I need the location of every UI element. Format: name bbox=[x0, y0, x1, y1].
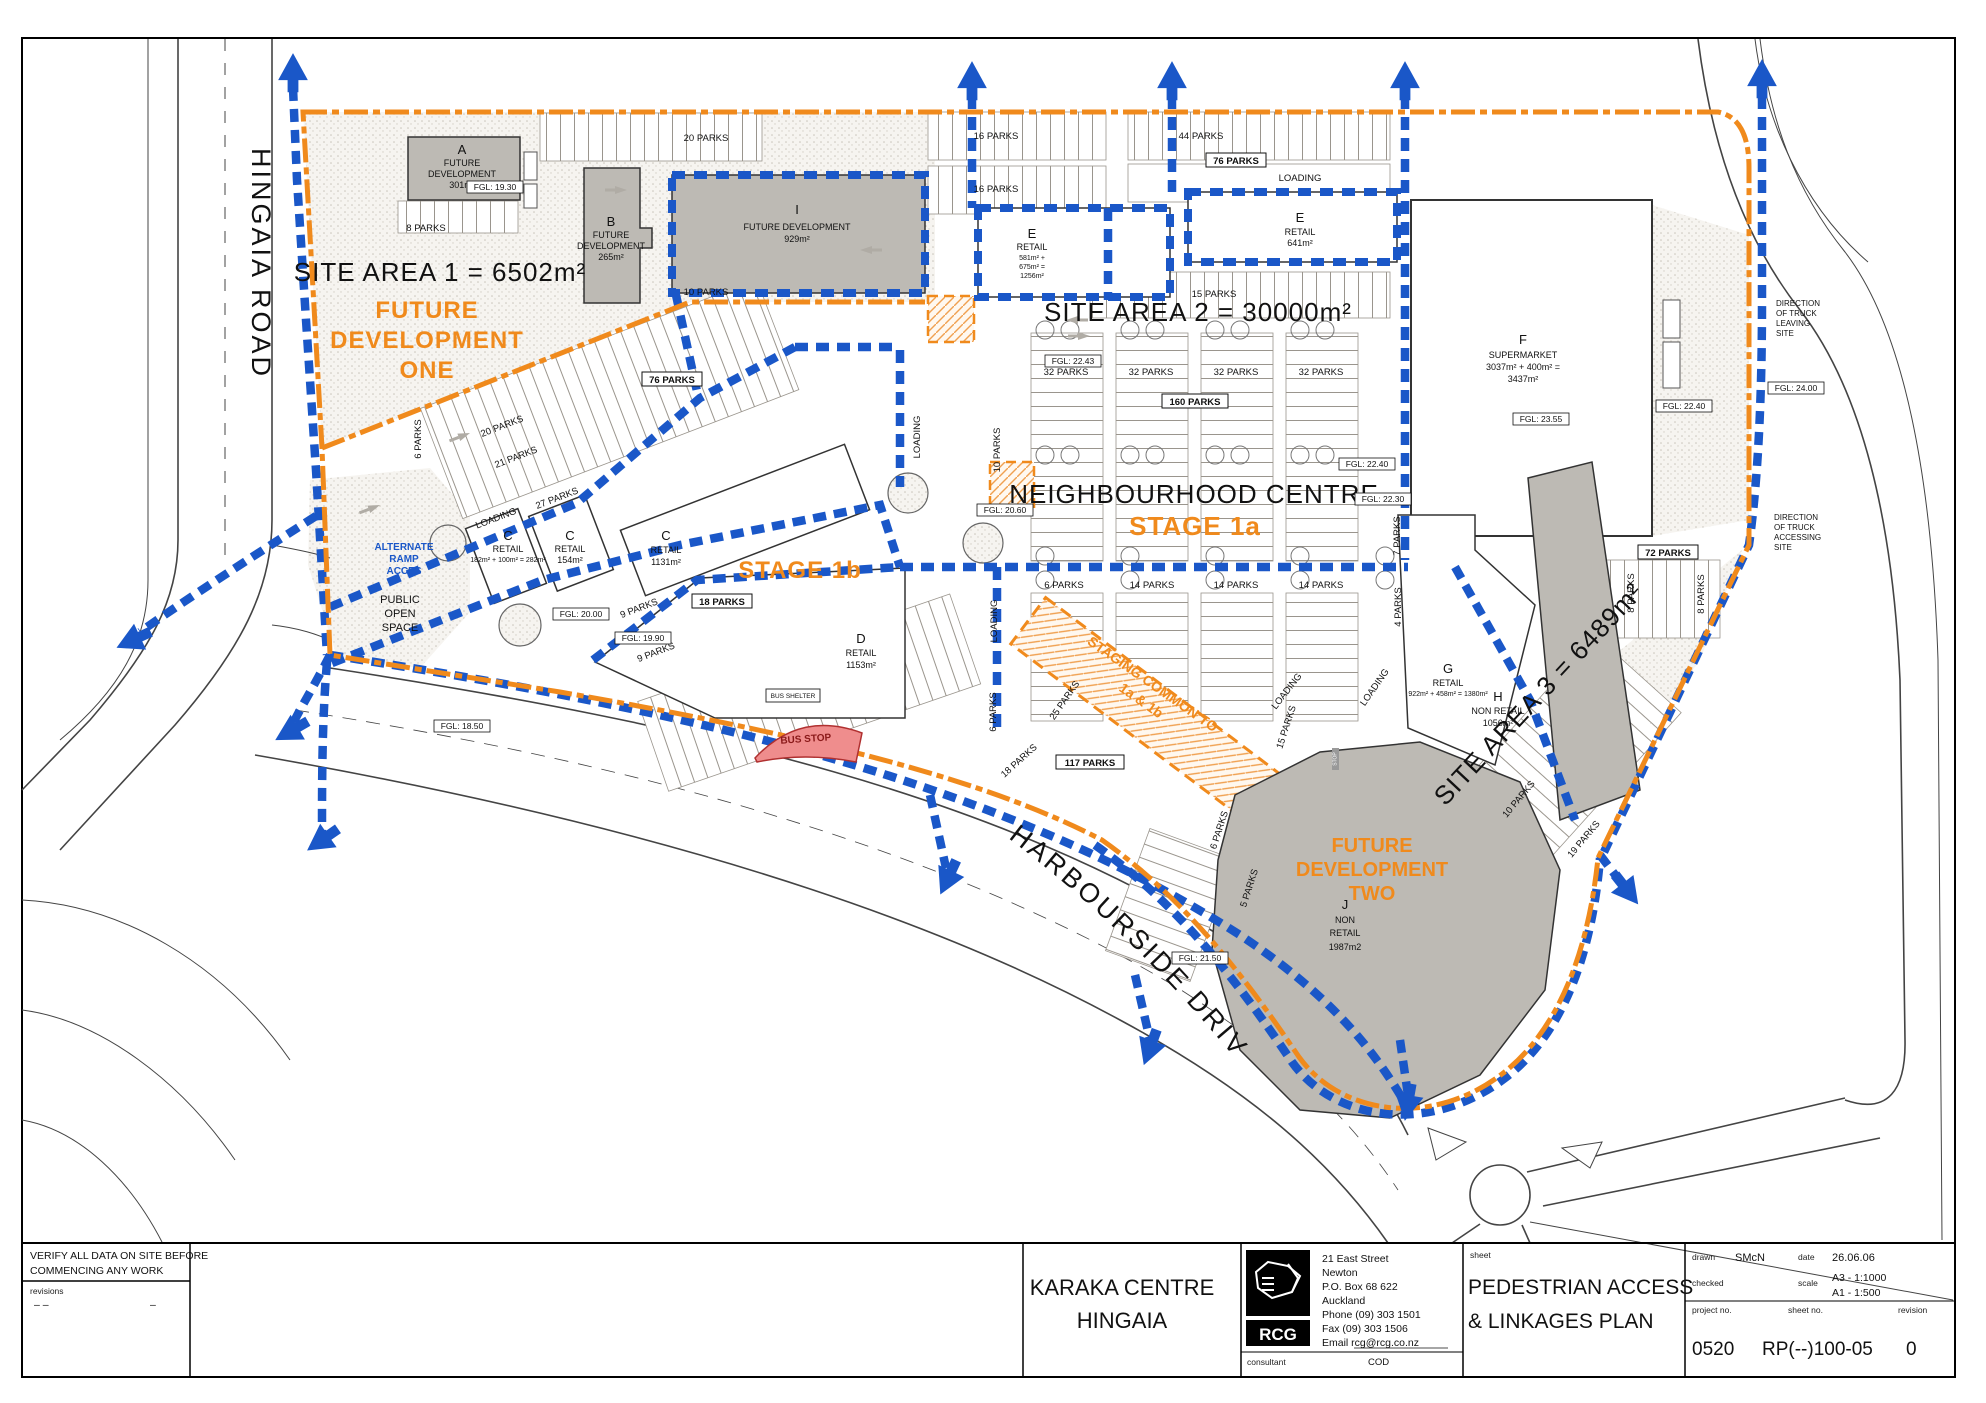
svg-text:Auckland: Auckland bbox=[1322, 1295, 1365, 1307]
svg-text:RETAIL: RETAIL bbox=[1285, 227, 1316, 237]
svg-text:8 PARKS: 8 PARKS bbox=[1626, 573, 1637, 612]
future-dev-two-label: TWO bbox=[1349, 883, 1396, 905]
svg-text:8 PARKS: 8 PARKS bbox=[406, 223, 445, 234]
svg-text:RETAIL: RETAIL bbox=[493, 544, 524, 554]
svg-text:14 PARKS: 14 PARKS bbox=[1299, 580, 1344, 591]
stage-1a-label: STAGE 1a bbox=[1129, 511, 1261, 541]
svg-text:RETAIL: RETAIL bbox=[1330, 928, 1361, 938]
svg-text:FGL: 19.30: FGL: 19.30 bbox=[474, 182, 517, 192]
svg-text:581m² +: 581m² + bbox=[1019, 255, 1045, 262]
stage-1b-label: STAGE 1b bbox=[738, 557, 862, 584]
svg-text:160 PARKS: 160 PARKS bbox=[1169, 397, 1220, 408]
svg-text:–: – bbox=[150, 1299, 156, 1311]
svg-text:project no.: project no. bbox=[1692, 1305, 1732, 1315]
svg-text:FGL: 22.40: FGL: 22.40 bbox=[1663, 401, 1706, 411]
svg-text:RCG: RCG bbox=[1259, 1325, 1297, 1344]
svg-text:H: H bbox=[1493, 689, 1502, 704]
svg-text:117 PARKS: 117 PARKS bbox=[1065, 758, 1116, 769]
svg-text:DEVELOPMENT: DEVELOPMENT bbox=[577, 241, 646, 251]
site-area-1-label: SITE AREA 1 = 6502m² bbox=[294, 257, 586, 287]
svg-text:FGL: 24.00: FGL: 24.00 bbox=[1775, 383, 1818, 393]
svg-text:6 PARKS: 6 PARKS bbox=[413, 419, 424, 458]
svg-text:C: C bbox=[503, 528, 512, 543]
public-open-space-label: OPEN bbox=[384, 608, 415, 620]
svg-text:FGL: 22.43: FGL: 22.43 bbox=[1052, 356, 1095, 366]
svg-text:scale: scale bbox=[1798, 1278, 1818, 1288]
svg-text:LOADING: LOADING bbox=[912, 416, 923, 459]
site-area-2-label: SITE AREA 2 = 30000m² bbox=[1044, 297, 1352, 327]
svg-text:DIRECTION: DIRECTION bbox=[1776, 299, 1820, 308]
svg-text:drawn: drawn bbox=[1692, 1252, 1715, 1262]
svg-text:FGL: 19.90: FGL: 19.90 bbox=[622, 633, 665, 643]
future-dev-two-label: DEVELOPMENT bbox=[1296, 859, 1448, 881]
project-no-value: 0520 bbox=[1692, 1339, 1734, 1360]
svg-text:VERIFY ALL DATA ON SITE BEFORE: VERIFY ALL DATA ON SITE BEFORE bbox=[30, 1250, 208, 1262]
consultant-label: consultant bbox=[1247, 1357, 1286, 1367]
svg-text:641m²: 641m² bbox=[1287, 238, 1313, 248]
svg-text:4 PARKS: 4 PARKS bbox=[1393, 587, 1404, 626]
svg-text:OF TRUCK: OF TRUCK bbox=[1776, 309, 1817, 318]
public-open-space-label: PUBLIC bbox=[380, 594, 420, 606]
svg-text:72 PARKS: 72 PARKS bbox=[1645, 548, 1691, 559]
svg-text:32 PARKS: 32 PARKS bbox=[1214, 367, 1259, 378]
svg-text:NON RETAIL: NON RETAIL bbox=[1471, 706, 1524, 716]
sheet-no-value: RP(--)100-05 bbox=[1762, 1339, 1873, 1360]
date-value: 26.06.06 bbox=[1832, 1252, 1875, 1264]
svg-text:76 PARKS: 76 PARKS bbox=[1213, 156, 1259, 167]
drawing-canvas: HINGAIA ROAD HARBOURSIDE DRIVE SITE AREA… bbox=[0, 0, 1986, 1403]
svg-text:182m² + 100m² = 282m²: 182m² + 100m² = 282m² bbox=[470, 557, 546, 564]
neighbourhood-centre-label: NEIGHBOURHOOD CENTRE bbox=[1009, 479, 1379, 509]
svg-text:sheet: sheet bbox=[1470, 1250, 1491, 1260]
svg-text:RETAIL: RETAIL bbox=[555, 544, 586, 554]
sheet-title-line1: PEDESTRIAN ACCESS bbox=[1468, 1276, 1693, 1299]
building-e1 bbox=[978, 208, 1170, 297]
svg-text:J: J bbox=[1342, 897, 1349, 912]
svg-text:FGL: 20.60: FGL: 20.60 bbox=[984, 505, 1027, 515]
svg-text:DIRECTION: DIRECTION bbox=[1774, 513, 1818, 522]
svg-text:1153m²: 1153m² bbox=[846, 660, 876, 670]
svg-text:NON: NON bbox=[1335, 915, 1355, 925]
svg-text:1056m²: 1056m² bbox=[1483, 718, 1514, 728]
svg-text:I: I bbox=[795, 202, 799, 217]
svg-text:F: F bbox=[1519, 332, 1527, 347]
svg-text:1256m²: 1256m² bbox=[1020, 273, 1044, 280]
svg-text:76 PARKS: 76 PARKS bbox=[649, 375, 695, 386]
svg-text:FGL: 20.00: FGL: 20.00 bbox=[560, 609, 603, 619]
svg-text:P.O. Box 68 622: P.O. Box 68 622 bbox=[1322, 1281, 1398, 1293]
svg-text:1131m²: 1131m² bbox=[651, 557, 681, 567]
svg-text:FGL: 21.50: FGL: 21.50 bbox=[1179, 953, 1222, 963]
svg-text:6 PARKS: 6 PARKS bbox=[1044, 580, 1083, 591]
svg-text:C: C bbox=[565, 528, 574, 543]
svg-text:LOADING: LOADING bbox=[989, 600, 1000, 643]
svg-text:sheet no.: sheet no. bbox=[1788, 1305, 1823, 1315]
svg-text:LEAVING: LEAVING bbox=[1776, 319, 1810, 328]
svg-text:32 PARKS: 32 PARKS bbox=[1044, 367, 1089, 378]
revisions-label: revisions bbox=[30, 1286, 64, 1296]
svg-text:3437m²: 3437m² bbox=[1508, 374, 1539, 384]
svg-text:32 PARKS: 32 PARKS bbox=[1129, 367, 1174, 378]
svg-text:FGL: 22.40: FGL: 22.40 bbox=[1346, 459, 1389, 469]
svg-text:FGL: 22.30: FGL: 22.30 bbox=[1362, 494, 1405, 504]
svg-text:LOADING: LOADING bbox=[1279, 173, 1322, 184]
svg-text:– –: – – bbox=[34, 1299, 49, 1311]
svg-text:922m² + 458m² = 1380m²: 922m² + 458m² = 1380m² bbox=[1408, 691, 1488, 698]
svg-text:15 PARKS: 15 PARKS bbox=[1192, 289, 1237, 300]
svg-text:16 PARKS: 16 PARKS bbox=[974, 131, 1019, 142]
svg-text:FGL: 18.50: FGL: 18.50 bbox=[441, 721, 484, 731]
svg-text:DEVELOPMENT: DEVELOPMENT bbox=[428, 169, 497, 179]
svg-text:675m² =: 675m² = bbox=[1019, 264, 1045, 271]
future-dev-two-label: FUTURE bbox=[1331, 835, 1412, 857]
bus-shelter-label: BUS SHELTER bbox=[771, 693, 816, 700]
svg-text:44 PARKS: 44 PARKS bbox=[1179, 131, 1224, 142]
svg-text:OF TRUCK: OF TRUCK bbox=[1774, 523, 1815, 532]
svg-text:21 East Street: 21 East Street bbox=[1322, 1253, 1389, 1265]
revision-value: 0 bbox=[1906, 1339, 1917, 1360]
svg-text:FUTURE: FUTURE bbox=[444, 158, 481, 168]
svg-text:32 PARKS: 32 PARKS bbox=[1299, 367, 1344, 378]
svg-text:A: A bbox=[458, 142, 467, 157]
svg-text:E: E bbox=[1028, 226, 1037, 241]
scale-a3: A3 - 1:1000 bbox=[1832, 1272, 1886, 1284]
hingaia-road-label: HINGAIA ROAD bbox=[246, 148, 276, 379]
svg-text:D: D bbox=[856, 631, 865, 646]
svg-text:FUTURE DEVELOPMENT: FUTURE DEVELOPMENT bbox=[743, 222, 851, 232]
svg-text:20 PARKS: 20 PARKS bbox=[684, 133, 729, 144]
future-dev-one-label: FUTURE bbox=[375, 297, 478, 324]
svg-text:7 PARKS: 7 PARKS bbox=[1392, 516, 1403, 555]
site-plan-svg: HINGAIA ROAD HARBOURSIDE DRIVE SITE AREA… bbox=[0, 0, 1986, 1403]
sheet-title-line2: & LINKAGES PLAN bbox=[1468, 1310, 1654, 1333]
svg-text:SITE: SITE bbox=[1774, 543, 1792, 552]
svg-text:14 PARKS: 14 PARKS bbox=[1130, 580, 1175, 591]
alternate-ramp-label: ACCES bbox=[386, 566, 421, 577]
svg-text:Newton: Newton bbox=[1322, 1267, 1358, 1279]
svg-text:RETAIL: RETAIL bbox=[1017, 242, 1048, 252]
alternate-ramp-label: RAMP bbox=[389, 554, 419, 565]
svg-text:RETAIL: RETAIL bbox=[651, 545, 682, 555]
svg-text:3037m² + 400m² =: 3037m² + 400m² = bbox=[1486, 362, 1560, 372]
svg-text:HINGAIA: HINGAIA bbox=[1077, 1308, 1168, 1333]
alternate-ramp-label: ALTERNATE bbox=[374, 542, 433, 553]
svg-text:RETAIL: RETAIL bbox=[1433, 678, 1464, 688]
svg-text:154m²: 154m² bbox=[557, 555, 583, 565]
svg-text:265m²: 265m² bbox=[598, 252, 624, 262]
drawn-value: SMcN bbox=[1735, 1252, 1765, 1264]
svg-text:10 PARKS: 10 PARKS bbox=[684, 287, 729, 298]
svg-text:ACCESSING: ACCESSING bbox=[1774, 533, 1821, 542]
svg-text:Fax (09) 303 1506: Fax (09) 303 1506 bbox=[1322, 1323, 1408, 1335]
svg-text:SUPERMARKET: SUPERMARKET bbox=[1489, 350, 1558, 360]
public-open-space-label: SPACE bbox=[382, 622, 418, 634]
svg-text:10 PARKS: 10 PARKS bbox=[992, 428, 1003, 473]
svg-text:revision: revision bbox=[1898, 1305, 1928, 1315]
svg-text:SITE: SITE bbox=[1776, 329, 1794, 338]
svg-text:RETAIL: RETAIL bbox=[846, 648, 877, 658]
consultant-value: COD bbox=[1368, 1357, 1389, 1368]
svg-text:14 PARKS: 14 PARKS bbox=[1214, 580, 1259, 591]
svg-text:1987m2: 1987m2 bbox=[1329, 942, 1362, 952]
svg-text:COMMENCING ANY WORK: COMMENCING ANY WORK bbox=[30, 1265, 163, 1277]
svg-text:16 PARKS: 16 PARKS bbox=[974, 184, 1019, 195]
svg-text:checked: checked bbox=[1692, 1278, 1724, 1288]
svg-text:Phone (09) 303 1501: Phone (09) 303 1501 bbox=[1322, 1309, 1421, 1321]
scale-a1: A1 - 1:500 bbox=[1832, 1287, 1881, 1299]
svg-text:FUTURE: FUTURE bbox=[593, 230, 630, 240]
firm-email: Email rcg@rcg.co.nz bbox=[1322, 1337, 1419, 1349]
future-dev-one-label: ONE bbox=[399, 357, 454, 384]
svg-text:G: G bbox=[1443, 661, 1453, 676]
svg-text:date: date bbox=[1798, 1252, 1815, 1262]
svg-text:929m²: 929m² bbox=[784, 234, 810, 244]
svg-text:C: C bbox=[661, 528, 670, 543]
svg-text:18 PARKS: 18 PARKS bbox=[699, 597, 745, 608]
stop-sign-label: STOP bbox=[1333, 752, 1339, 766]
svg-text:B: B bbox=[607, 214, 616, 229]
svg-text:FGL: 23.55: FGL: 23.55 bbox=[1520, 414, 1563, 424]
svg-text:E: E bbox=[1296, 210, 1305, 225]
svg-text:KARAKA CENTRE: KARAKA CENTRE bbox=[1030, 1275, 1215, 1300]
svg-text:6 PARKS: 6 PARKS bbox=[988, 692, 999, 731]
future-dev-one-label: DEVELOPMENT bbox=[330, 327, 524, 354]
svg-text:8 PARKS: 8 PARKS bbox=[1696, 574, 1707, 613]
